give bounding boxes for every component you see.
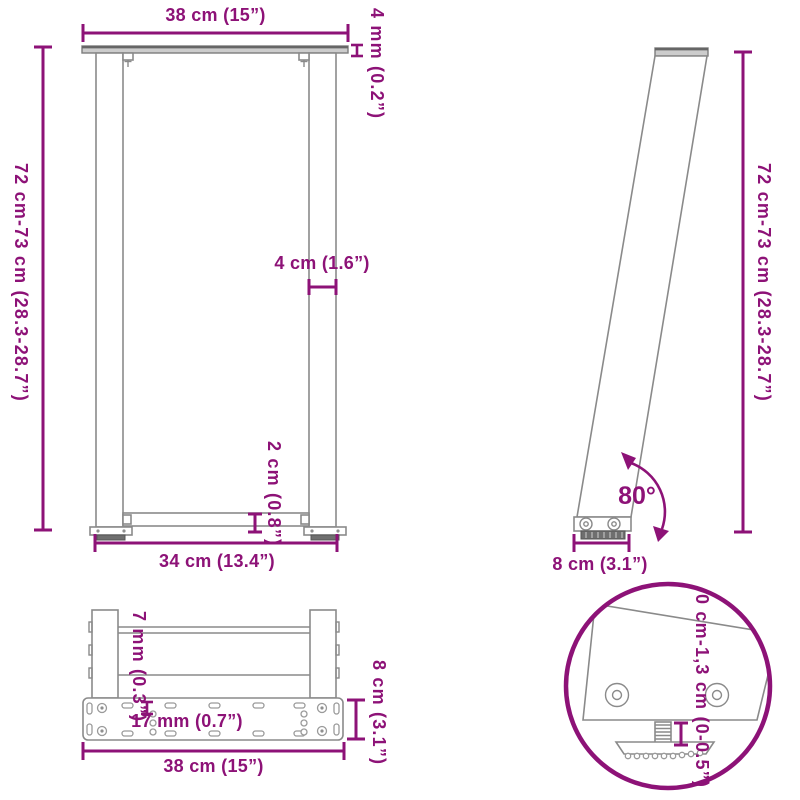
front-crossbar-label: 2 cm (0.8”) <box>263 441 283 546</box>
bottom-hole-spacing-label: 17 mm (0.7”) <box>107 712 267 732</box>
side-view-drawing <box>574 48 708 539</box>
mounting-screw-icon <box>125 60 308 67</box>
side-foot-depth-label: 8 cm (3.1”) <box>520 555 680 575</box>
side-angle-label: 80° <box>605 483 669 511</box>
front-plate-thickness-label: 4 mm (0.2”) <box>366 8 386 119</box>
bottom-plate-depth-label: 8 cm (3.1”) <box>368 660 388 765</box>
front-top-width-label: 38 cm (15”) <box>83 6 348 26</box>
front-leg-width-label: 4 cm (1.6”) <box>252 254 392 274</box>
front-height-label: 72 cm-73 cm (28.3-28.7”) <box>10 163 30 402</box>
side-height-label: 72 cm-73 cm (28.3-28.7”) <box>753 163 773 402</box>
detail-adjust-range-label: 0 cm-1,3 cm (0-0.5”) <box>691 594 711 788</box>
bottom-profile-thickness-label: 7 mm (0.3”) <box>128 611 148 722</box>
diagram-linework <box>0 0 800 800</box>
front-feet <box>90 527 346 540</box>
detail-view-drawing <box>566 584 778 788</box>
adjustable-foot-pad <box>581 531 625 539</box>
product-dimensions-diagram: 38 cm (15”) 4 mm (0.2”) 72 cm-73 cm (28.… <box>0 0 800 800</box>
front-bottom-width-label: 34 cm (13.4”) <box>96 552 338 572</box>
bottom-plate-width-label: 38 cm (15”) <box>83 757 344 777</box>
